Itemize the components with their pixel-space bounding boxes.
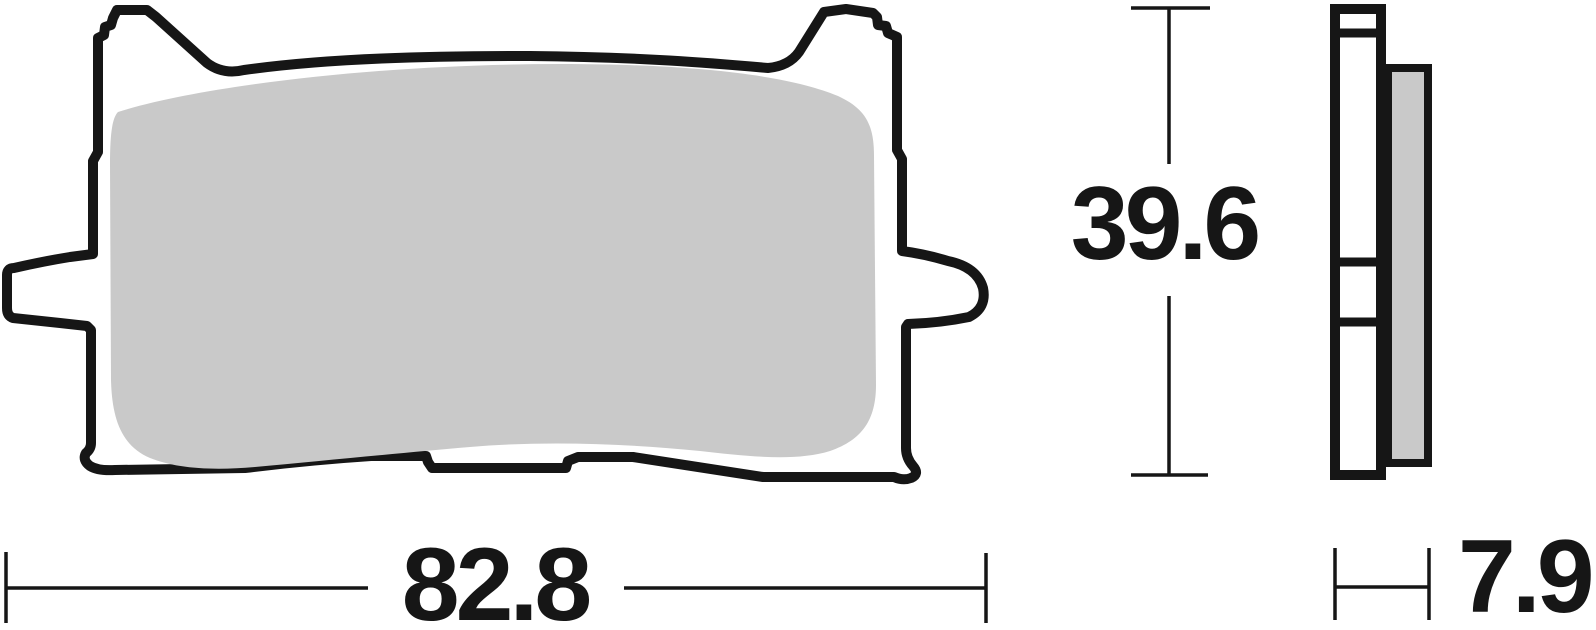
friction-material-front — [110, 64, 876, 469]
friction-material-side — [1388, 68, 1428, 463]
thickness-dimension-label: 7.9 — [1458, 525, 1591, 629]
height-dimension-label: 39.6 — [1071, 172, 1257, 276]
brake-pad-drawing — [0, 0, 1596, 630]
brake-pad-side-view — [1332, 9, 1428, 475]
width-dimension-label: 82.8 — [402, 533, 588, 630]
backing-plate-side — [1335, 9, 1381, 475]
technical-drawing-canvas: 82.8 39.6 7.9 — [0, 0, 1596, 630]
brake-pad-front-view — [7, 9, 984, 479]
thickness-dimension-lines — [1335, 548, 1429, 620]
